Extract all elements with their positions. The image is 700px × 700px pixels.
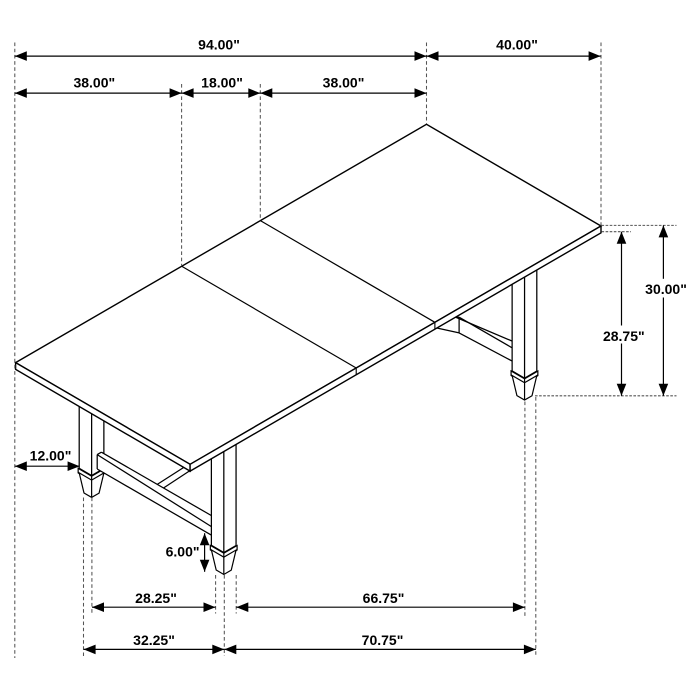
svg-text:40.00": 40.00" [496, 36, 538, 52]
svg-text:18.00": 18.00" [201, 74, 243, 90]
svg-text:66.75": 66.75" [363, 590, 405, 606]
svg-text:38.00": 38.00" [73, 74, 115, 90]
svg-text:30.00": 30.00" [645, 281, 687, 297]
svg-text:70.75": 70.75" [362, 632, 404, 648]
svg-text:6.00": 6.00" [166, 544, 200, 560]
svg-text:32.25": 32.25" [133, 632, 175, 648]
svg-text:28.25": 28.25" [135, 590, 177, 606]
svg-text:94.00": 94.00" [198, 36, 240, 52]
svg-text:12.00": 12.00" [30, 447, 72, 463]
svg-text:38.00": 38.00" [323, 74, 365, 90]
svg-text:28.75": 28.75" [603, 328, 645, 344]
